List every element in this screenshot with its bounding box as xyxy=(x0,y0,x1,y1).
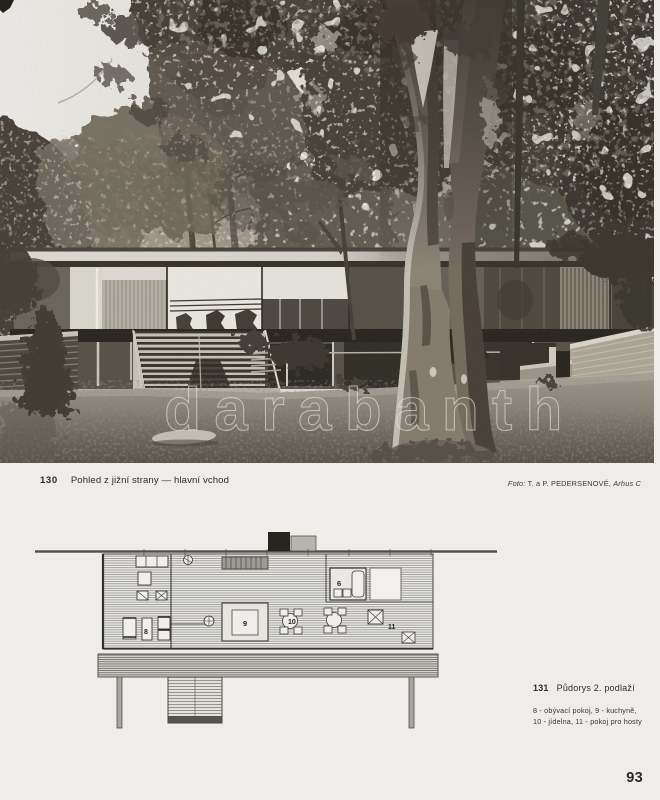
svg-text:11: 11 xyxy=(388,624,396,631)
svg-text:8: 8 xyxy=(144,629,148,636)
svg-text:9: 9 xyxy=(243,619,247,628)
svg-text:6: 6 xyxy=(337,579,341,588)
svg-text:10: 10 xyxy=(288,619,296,626)
